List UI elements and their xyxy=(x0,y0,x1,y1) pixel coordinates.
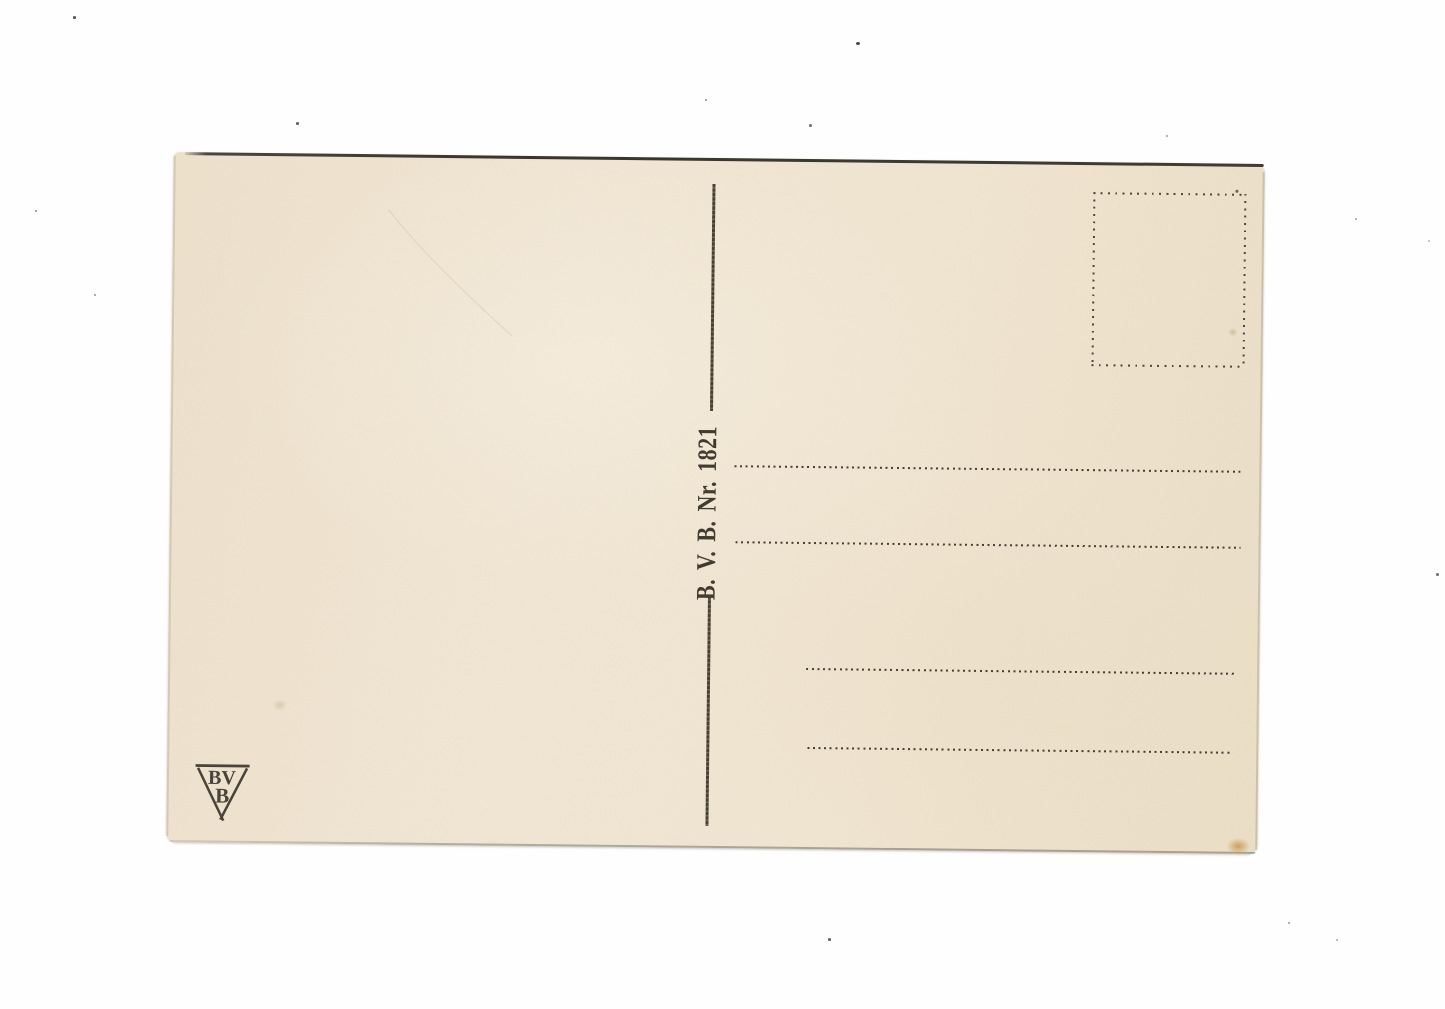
svg-text:B: B xyxy=(215,784,229,808)
